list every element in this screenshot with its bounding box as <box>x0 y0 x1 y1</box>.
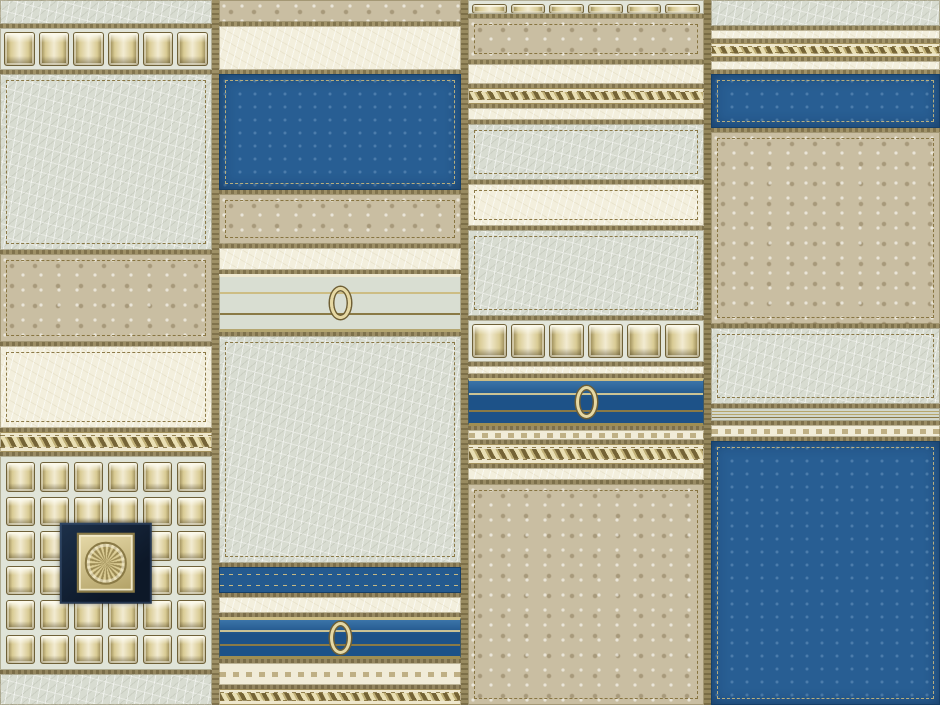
panel-cream <box>219 597 461 613</box>
gold-stud-icon <box>177 600 206 630</box>
gold-stud-icon <box>6 566 35 596</box>
panel-cream <box>711 30 940 39</box>
gold-stud-icon <box>73 32 104 66</box>
gold-stud-icon <box>6 462 35 492</box>
gold-stud-icon <box>4 32 35 66</box>
panel-pebble <box>711 132 940 324</box>
panel-blue <box>711 441 940 705</box>
panel-crackle <box>468 230 704 316</box>
gold-stud-icon <box>39 32 70 66</box>
panel-pebble <box>468 484 704 705</box>
panel-crackle <box>0 0 212 24</box>
panel-rope <box>468 444 704 464</box>
panel-crackle <box>0 674 212 705</box>
gold-stud-icon <box>627 4 662 14</box>
gold-stud-icon <box>511 4 546 14</box>
panel-pebble <box>468 18 704 60</box>
panel-cream <box>468 366 704 374</box>
panel-crackle <box>711 328 940 404</box>
patch-column-3 <box>468 0 704 705</box>
gold-studs-row <box>468 320 704 362</box>
gold-stud-icon <box>472 4 507 14</box>
gold-stud-icon <box>108 462 137 492</box>
gold-studs-row <box>468 0 704 14</box>
gold-stud-icon <box>143 497 172 527</box>
gold-stud-icon <box>74 497 103 527</box>
panel-rope <box>711 43 940 57</box>
panel-rope <box>0 432 212 452</box>
panel-trim-gray <box>711 408 940 421</box>
patch-column-4 <box>711 0 940 705</box>
panel-cream <box>219 248 461 270</box>
gray-ornament-band <box>219 274 461 332</box>
panel-cream <box>468 184 704 226</box>
gold-stud-icon <box>108 635 137 665</box>
gold-stud-icon <box>108 600 137 630</box>
panel-cream <box>468 468 704 480</box>
gold-stud-icon <box>665 324 700 358</box>
gold-studs-grid <box>0 456 212 670</box>
gold-stud-icon <box>6 635 35 665</box>
blue-ornament-band <box>468 378 704 426</box>
panel-crackle <box>468 124 704 180</box>
panel-cream <box>711 61 940 70</box>
panel-cream-deco <box>468 430 704 440</box>
gold-stud-icon <box>6 531 35 561</box>
panel-cream-deco <box>711 425 940 437</box>
gold-stud-icon <box>665 4 700 14</box>
panel-crackle <box>219 336 461 563</box>
gold-stud-icon <box>177 497 206 527</box>
panel-blue-plain <box>219 567 461 593</box>
wallpaper-patchwork-photo <box>0 0 940 705</box>
panel-blue <box>711 74 940 128</box>
gold-stud-icon <box>143 32 174 66</box>
gold-stud-icon <box>511 324 546 358</box>
gold-stud-icon <box>143 600 172 630</box>
panel-pebble <box>0 254 212 342</box>
gold-stud-icon <box>177 635 206 665</box>
ring-ornament-icon <box>330 287 351 319</box>
ring-ornament-icon <box>330 622 351 654</box>
gold-stud-icon <box>108 32 139 66</box>
gold-stud-icon <box>40 462 69 492</box>
patch-column-2 <box>219 0 461 705</box>
ring-ornament-icon <box>576 386 597 418</box>
panel-cream <box>219 26 461 70</box>
gold-stud-icon <box>74 635 103 665</box>
medallion-gold-frame <box>77 533 135 593</box>
patch-column-1 <box>0 0 212 705</box>
navy-medallion <box>60 523 152 604</box>
panel-cream <box>468 64 704 84</box>
panel-pebble <box>219 194 461 244</box>
gold-stud-icon <box>6 497 35 527</box>
gold-stud-icon <box>177 462 206 492</box>
gold-stud-icon <box>588 324 623 358</box>
gold-stud-icon <box>40 600 69 630</box>
gold-stud-icon <box>472 324 507 358</box>
gold-stud-icon <box>177 32 208 66</box>
panel-rope <box>468 88 704 104</box>
panel-cream <box>468 108 704 120</box>
panel-rope <box>219 689 461 705</box>
gold-stud-icon <box>143 462 172 492</box>
gold-stud-icon <box>143 635 172 665</box>
rosette-icon <box>85 542 128 585</box>
panel-cream-deco <box>219 663 461 685</box>
gold-stud-icon <box>588 4 623 14</box>
panel-crackle <box>711 0 940 26</box>
gold-stud-icon <box>74 600 103 630</box>
gold-stud-icon <box>549 4 584 14</box>
gold-stud-icon <box>177 531 206 561</box>
gold-stud-icon <box>40 635 69 665</box>
gold-stud-icon <box>40 497 69 527</box>
gold-stud-icon <box>108 497 137 527</box>
panel-crackle <box>0 74 212 250</box>
gold-studs-row <box>0 28 212 70</box>
panel-cream <box>0 346 212 428</box>
gold-stud-icon <box>549 324 584 358</box>
gold-stud-icon <box>74 462 103 492</box>
gold-stud-icon <box>177 566 206 596</box>
gold-stud-icon <box>6 600 35 630</box>
gold-stud-icon <box>627 324 662 358</box>
panel-pebble <box>219 0 461 22</box>
blue-ornament-band <box>219 617 461 659</box>
panel-blue <box>219 74 461 190</box>
